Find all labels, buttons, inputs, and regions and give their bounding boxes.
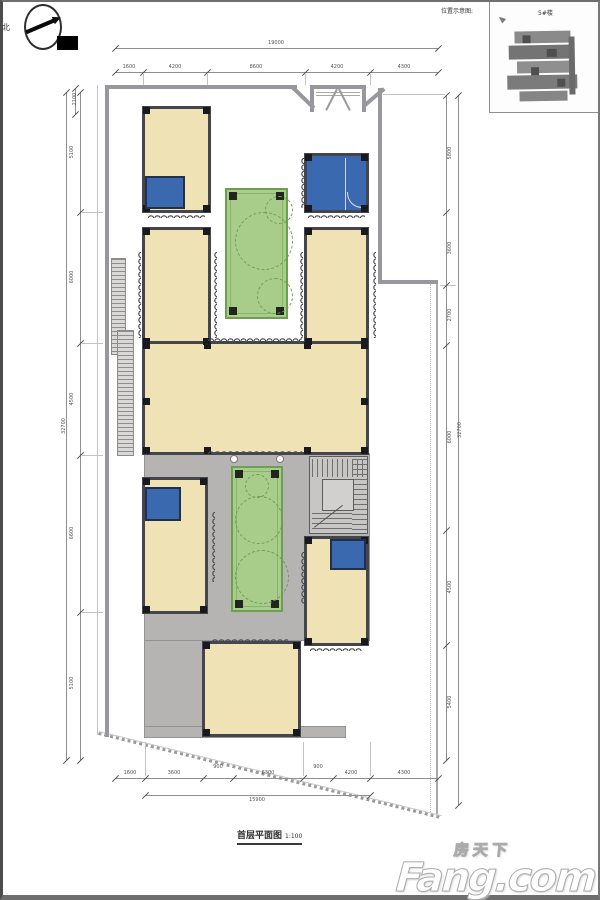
caption-title: 首层平面图 [237, 831, 282, 841]
courtyard-column [235, 470, 243, 478]
room-mid-west [142, 227, 211, 346]
dimension-label: 4300 [389, 64, 419, 70]
property-line-right-dashed [430, 284, 431, 812]
courtyard-upper [225, 188, 288, 319]
witness-line [440, 285, 456, 286]
column [203, 642, 210, 649]
witness-line [207, 74, 208, 85]
column [143, 398, 150, 405]
column [204, 342, 211, 349]
column [361, 228, 368, 235]
wall-diagonal-right [363, 87, 385, 107]
column [143, 228, 150, 235]
dimension-line-bottom-overall [145, 795, 370, 796]
dimension-tick [443, 342, 450, 349]
property-line-right [436, 282, 438, 814]
dimension-label: 2700 [447, 300, 453, 330]
witness-line [303, 742, 304, 776]
window-band [148, 212, 205, 218]
column [143, 447, 150, 454]
column [200, 606, 207, 613]
column [305, 228, 312, 235]
room-south-east-bath [330, 539, 366, 570]
room-north-east-blue [304, 153, 369, 213]
entrance-gate-frame [316, 92, 360, 96]
dimension-label: 3600 [447, 233, 453, 263]
window-band [308, 212, 365, 218]
column [203, 107, 210, 114]
dimension-label: 5400 [447, 687, 453, 717]
witness-line [370, 742, 371, 776]
dimension-label: 2100 [72, 84, 78, 114]
column [361, 205, 368, 212]
column [200, 478, 207, 485]
dimension-tick [63, 757, 70, 764]
courtyard-lower [231, 466, 283, 612]
dimension-tick [142, 775, 149, 782]
room-south [202, 641, 301, 737]
dimension-tick [77, 757, 84, 764]
dimension-label: 5800 [447, 138, 453, 168]
floor-plan-page: 北 位置示意图: 5#楼 [0, 0, 600, 900]
dimension-tick [443, 527, 450, 534]
column [305, 638, 312, 645]
window-band [135, 252, 141, 338]
witness-line [143, 74, 144, 85]
dimension-tick [455, 92, 462, 99]
dimension-label: 4500 [69, 384, 75, 414]
column [361, 398, 368, 405]
column [361, 638, 368, 645]
dimension-tick [112, 45, 119, 52]
witness-line [82, 212, 103, 213]
dimension-label: 4200 [160, 64, 190, 70]
window-band [298, 158, 304, 208]
room-south-west-bath [145, 487, 181, 521]
partition-line [345, 158, 346, 210]
tree-icon [265, 196, 293, 224]
site-plan-thumbnail [506, 26, 583, 105]
property-line-left [97, 85, 98, 735]
window-band [209, 512, 215, 582]
dimension-label: 8600 [241, 64, 271, 70]
dimension-line-top [115, 72, 438, 73]
dimension-tick [443, 642, 450, 649]
column [203, 205, 210, 212]
window-band [208, 448, 302, 454]
dimension-label: 3600 [159, 770, 189, 776]
inset-north-arrow-icon [497, 14, 506, 23]
dimension-label: 6300 [253, 770, 283, 776]
dimension-tick [230, 775, 237, 782]
wall-left [105, 85, 109, 737]
tree-icon [245, 474, 269, 498]
column [361, 154, 368, 161]
witness-line [82, 343, 103, 344]
entrance-gate-jamb-right [362, 85, 366, 112]
dimension-tick [112, 69, 119, 76]
column [305, 205, 312, 212]
wall-right [378, 88, 382, 284]
dimension-line-left [80, 92, 81, 760]
tree-icon [235, 550, 289, 604]
column-base-circle [276, 455, 284, 463]
dimension-tick [330, 775, 337, 782]
dimension-tick [63, 89, 70, 96]
caption-scale: 1:100 [285, 833, 302, 840]
dimension-label: 4200 [322, 64, 352, 70]
column [305, 537, 312, 544]
stairs-west [117, 330, 134, 456]
wall-east-extension [378, 280, 438, 284]
dimension-tick [367, 775, 374, 782]
dimension-line-bottom [115, 778, 438, 779]
column [203, 729, 210, 736]
tree-icon [235, 496, 283, 544]
dimension-line-top-overall [115, 48, 438, 49]
dimension-label: 4200 [336, 770, 366, 776]
column [361, 342, 368, 349]
dimension-label: 1600 [115, 770, 145, 776]
dimension-tick [443, 757, 450, 764]
stair-landing [322, 479, 354, 511]
dimension-label: 19000 [261, 40, 291, 46]
dimension-label: 900 [303, 764, 333, 770]
dimension-tick [200, 775, 207, 782]
column [203, 228, 210, 235]
witness-line [82, 612, 103, 613]
window-band [298, 552, 304, 604]
column [143, 342, 150, 349]
dimension-label: 6000 [447, 422, 453, 452]
dimension-tick [435, 45, 442, 52]
watermark: 房天下 Fang.com [396, 839, 595, 896]
dimension-tick [455, 802, 462, 809]
column [293, 729, 300, 736]
courtyard-column [235, 600, 243, 608]
dimension-label: 900 [203, 764, 233, 770]
courtyard-column [271, 470, 279, 478]
courtyard-column [229, 307, 237, 315]
column-base-circle [230, 455, 238, 463]
inset-building-label: 5#楼 [538, 8, 553, 17]
window-band [370, 252, 376, 338]
witness-line [383, 94, 445, 95]
column [304, 342, 311, 349]
dimension-tick [112, 775, 119, 782]
watermark-logo: Fang.com [395, 860, 596, 896]
window-band [211, 252, 217, 338]
witness-line [145, 742, 146, 776]
witness-line [82, 455, 103, 456]
column [143, 478, 150, 485]
column [361, 447, 368, 454]
main-hall [142, 341, 369, 455]
courtyard-column [229, 192, 237, 200]
window-band [297, 252, 303, 338]
entrance-gate-jamb-left [310, 85, 314, 112]
north-label: 北 [2, 22, 10, 33]
dimension-label: 4500 [447, 572, 453, 602]
column [143, 107, 150, 114]
dimension-label: 1600 [114, 64, 144, 70]
tree-icon [257, 278, 293, 314]
witness-line [370, 74, 371, 85]
room-mid-east [304, 227, 369, 346]
column [305, 154, 312, 161]
dimension-label: 5100 [69, 668, 75, 698]
inset-caption: 位置示意图: [441, 6, 473, 15]
window-band [208, 335, 302, 341]
drawing-caption: 首层平面图1:100 [237, 823, 302, 845]
room-north-west-bath [145, 176, 185, 209]
dimension-line-right-overall [458, 95, 459, 805]
window-band [310, 645, 362, 651]
dimension-label: 5100 [69, 137, 75, 167]
column [143, 606, 150, 613]
dimension-label: 15900 [242, 797, 272, 803]
dimension-label: 6000 [69, 262, 75, 292]
dimension-tick [77, 89, 84, 96]
wall-top [105, 85, 297, 89]
dimension-label: 6600 [69, 518, 75, 548]
dimension-tick [443, 209, 450, 216]
column [304, 447, 311, 454]
dimension-tick [435, 69, 442, 76]
stair-block [309, 456, 368, 534]
inset-map: 5#楼 [489, 0, 599, 113]
column [293, 642, 300, 649]
legend-swatch [57, 36, 78, 50]
paved-court-left-arm [144, 640, 204, 737]
dimension-label: 4300 [389, 770, 419, 776]
dimension-label: 32700 [61, 411, 67, 441]
witness-line [305, 74, 306, 85]
dimension-label: 32700 [457, 415, 463, 445]
dimension-tick [142, 792, 149, 799]
window-band [212, 636, 288, 642]
stair-treads-right [352, 459, 367, 533]
